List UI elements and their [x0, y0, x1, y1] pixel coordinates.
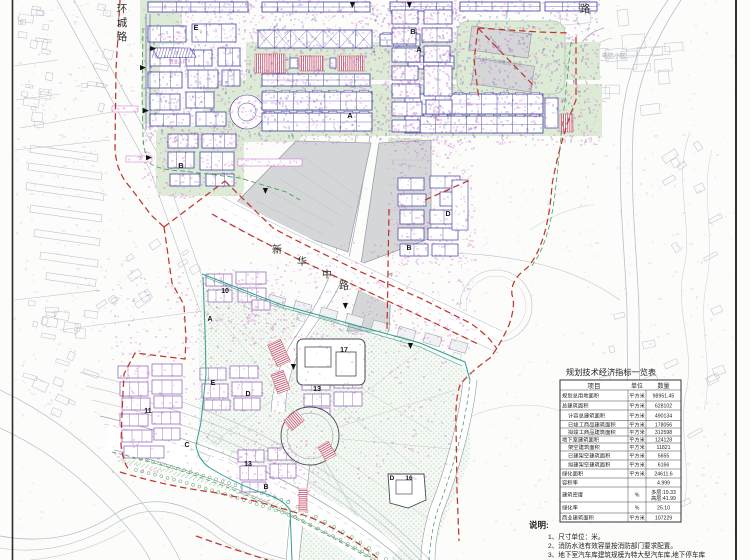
svg-text:高层:41.99: 高层:41.99: [651, 494, 676, 502]
svg-text:城: 城: [117, 17, 128, 29]
svg-text:电信小区: 电信小区: [602, 52, 626, 60]
svg-text:绿化面积: 绿化面积: [562, 470, 584, 478]
svg-text:建筑密度: 建筑密度: [562, 491, 584, 499]
svg-text:25.10: 25.10: [657, 506, 670, 512]
svg-text:E: E: [211, 380, 216, 387]
svg-text:17: 17: [340, 347, 348, 354]
svg-text:环: 环: [117, 3, 128, 15]
svg-text:13: 13: [244, 461, 252, 468]
svg-text:E: E: [193, 23, 198, 32]
svg-text:规划技术经济指标一览表: 规划技术经济指标一览表: [566, 367, 656, 377]
svg-text:%: %: [635, 493, 640, 499]
svg-text:D: D: [445, 211, 450, 218]
svg-text:平方米: 平方米: [629, 436, 645, 444]
svg-text:平方米: 平方米: [629, 392, 645, 400]
svg-text:平方米: 平方米: [629, 470, 645, 478]
svg-text:平方米: 平方米: [629, 411, 645, 419]
svg-text:平方米: 平方米: [629, 443, 645, 451]
svg-text:总建筑面积: 总建筑面积: [562, 402, 589, 410]
svg-text:地下室建筑面积: 地下室建筑面积: [562, 436, 600, 444]
svg-text:营业入口: 营业入口: [169, 58, 187, 65]
svg-text:24611.6: 24611.6: [654, 472, 672, 478]
svg-text:490134: 490134: [655, 413, 672, 419]
svg-text:A: A: [347, 111, 353, 120]
svg-text:4.999: 4.999: [657, 481, 670, 487]
svg-text:计容总建筑面积: 计容总建筑面积: [568, 411, 606, 419]
svg-text:A: A: [416, 45, 422, 54]
svg-text:架空建筑面积: 架空建筑面积: [568, 443, 600, 451]
svg-text:多层:19.33: 多层:19.33: [651, 488, 676, 496]
svg-text:%: %: [635, 506, 640, 512]
svg-text:平方米: 平方米: [629, 420, 645, 428]
svg-text:商业建筑面积: 商业建筑面积: [562, 514, 594, 522]
svg-text:6166: 6166: [658, 463, 670, 469]
svg-text:说明:: 说明:: [529, 520, 549, 530]
svg-text:已建架空建筑面积: 已建架空建筑面积: [568, 452, 611, 460]
svg-text:容积率: 容积率: [562, 479, 579, 487]
svg-text:11: 11: [144, 408, 152, 415]
svg-text:628102: 628102: [655, 404, 672, 410]
svg-text:华: 华: [297, 255, 307, 268]
svg-text:13: 13: [313, 386, 321, 393]
svg-text:3、地下室汽车库建筑规模为特大型汽车库,地下停车库: 3、地下室汽车库建筑规模为特大型汽车库,地下停车库: [548, 550, 706, 559]
svg-text:2、消防水池有效容量按消防部门要求配置。: 2、消防水池有效容量按消防部门要求配置。: [548, 541, 677, 550]
svg-text:绿化率: 绿化率: [562, 504, 579, 512]
svg-text:5655: 5655: [658, 454, 670, 460]
svg-text:98951.45: 98951.45: [653, 394, 675, 400]
svg-text:16: 16: [405, 475, 413, 482]
svg-text:中: 中: [322, 268, 332, 281]
svg-text:路: 路: [580, 2, 591, 15]
svg-text:平方米: 平方米: [629, 402, 645, 410]
svg-text:平方米: 平方米: [629, 452, 645, 460]
svg-text:平方米: 平方米: [629, 514, 645, 522]
svg-text:平方米: 平方米: [629, 428, 645, 436]
svg-text:11821: 11821: [656, 445, 670, 451]
svg-text:107229: 107229: [655, 516, 672, 522]
svg-text:拟建架空建筑面积: 拟建架空建筑面积: [568, 461, 611, 469]
svg-text:数量: 数量: [657, 382, 669, 390]
svg-text:项目: 项目: [588, 382, 601, 390]
svg-text:A: A: [207, 316, 212, 323]
svg-text:1、尺寸单位：米。: 1、尺寸单位：米。: [548, 532, 604, 541]
svg-text:平方米: 平方米: [629, 461, 645, 469]
svg-text:D: D: [390, 475, 395, 482]
svg-text:124128: 124128: [655, 438, 672, 444]
svg-text:312598: 312598: [655, 430, 672, 436]
svg-text:B: B: [263, 484, 268, 491]
svg-text:新: 新: [272, 243, 282, 256]
svg-text:C: C: [184, 442, 189, 449]
svg-text:拟竣工商品建筑面积: 拟竣工商品建筑面积: [568, 428, 616, 436]
svg-text:178056: 178056: [655, 422, 672, 428]
svg-text:路: 路: [339, 279, 349, 292]
svg-text:B: B: [410, 27, 416, 36]
svg-text:B: B: [178, 161, 184, 170]
svg-text:单位: 单位: [631, 382, 643, 390]
svg-text:已竣工商品建筑面积: 已竣工商品建筑面积: [568, 420, 616, 428]
svg-text:路: 路: [117, 30, 128, 43]
svg-text:D: D: [245, 391, 250, 398]
svg-text:规划总用地面积: 规划总用地面积: [562, 392, 600, 400]
